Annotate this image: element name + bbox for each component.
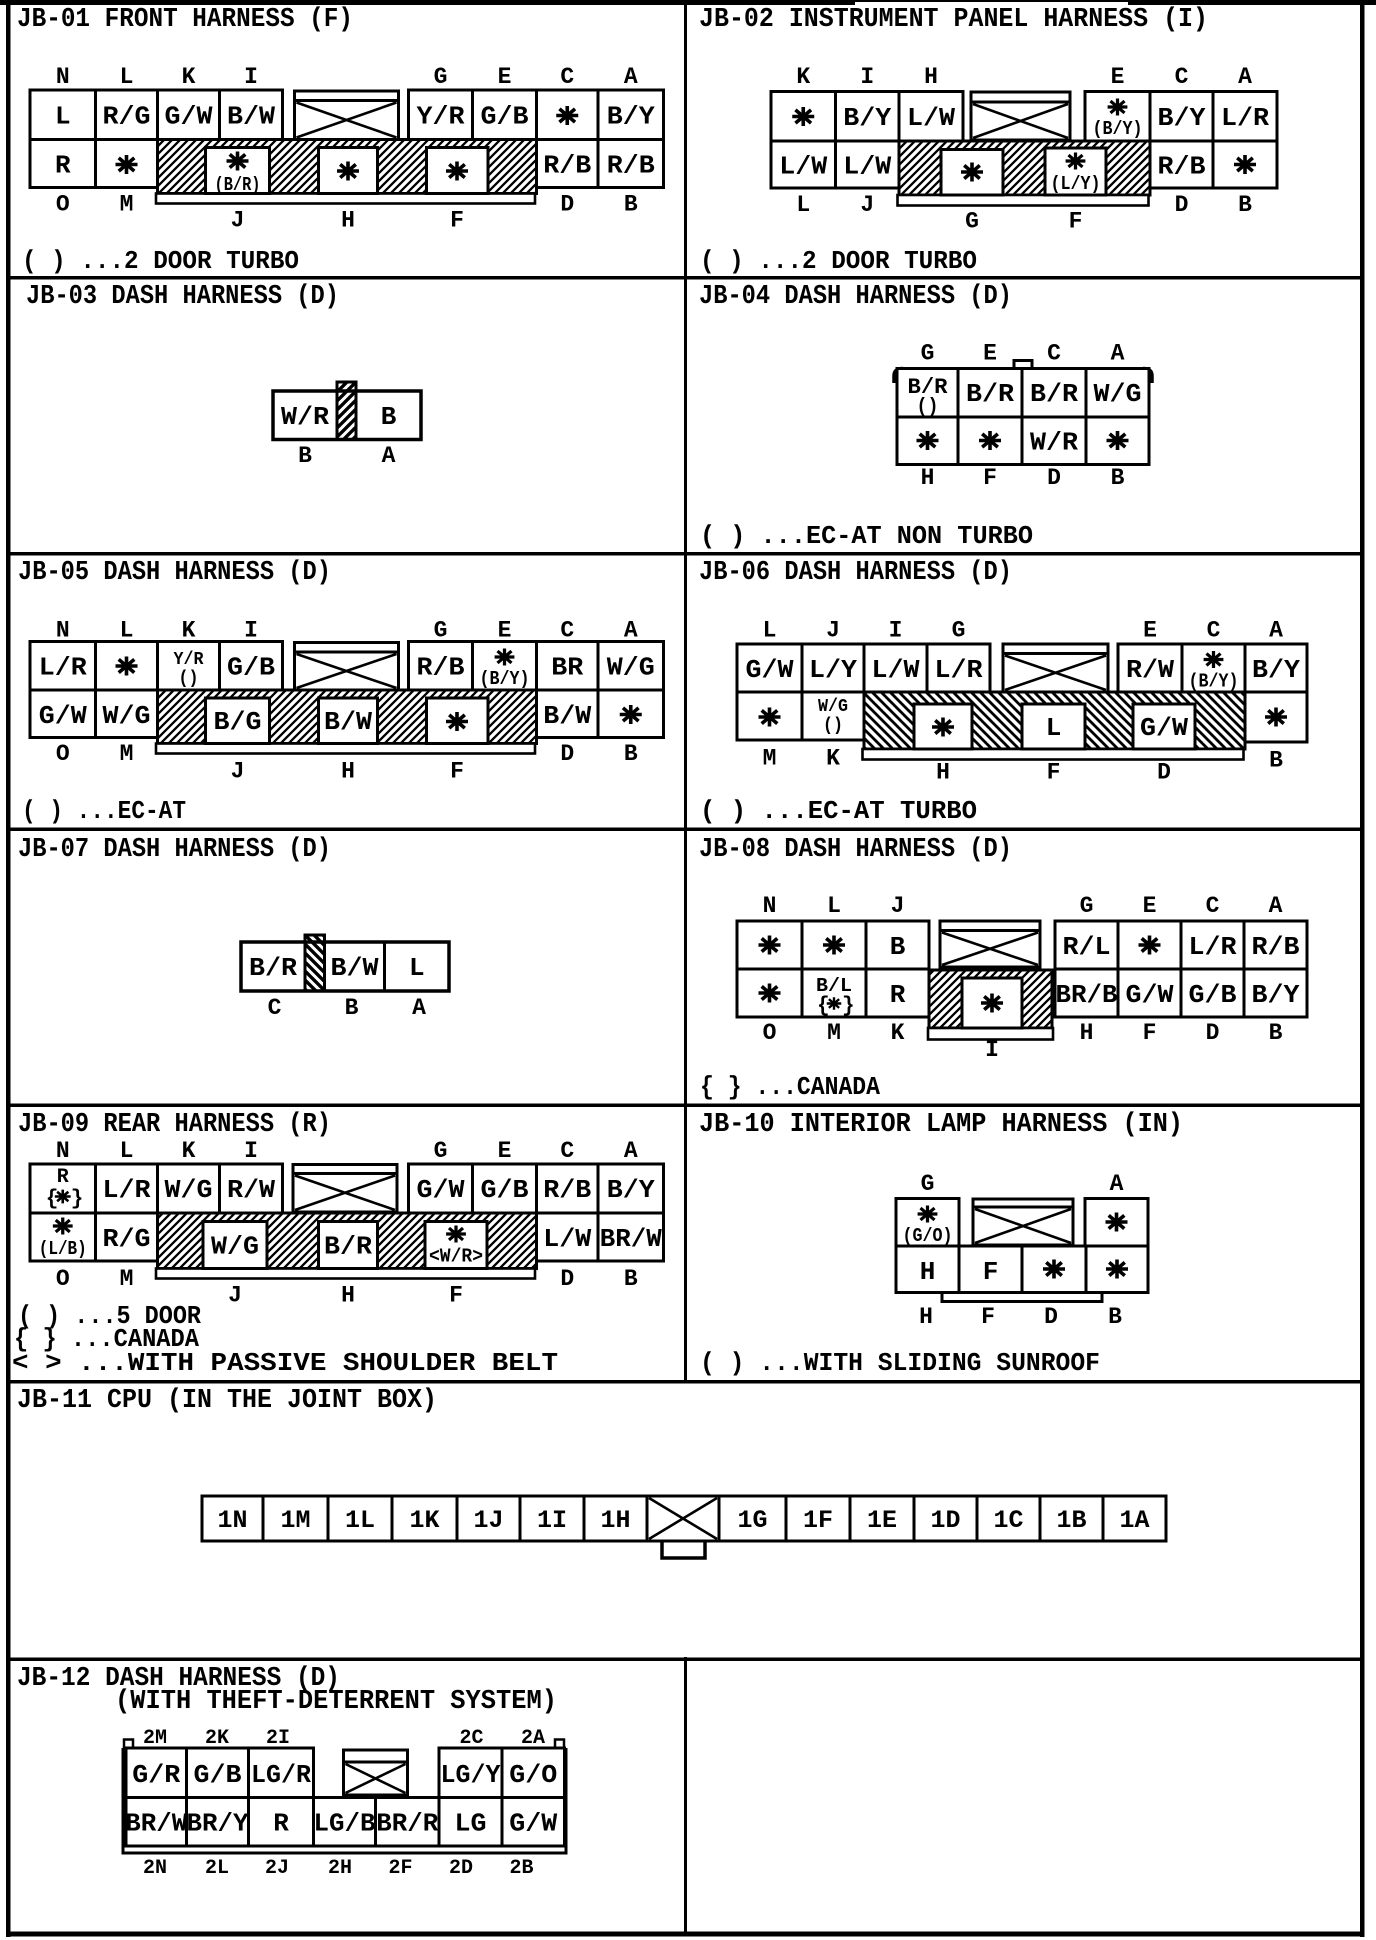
svg-text:L: L bbox=[409, 953, 425, 983]
svg-text:1A: 1A bbox=[1120, 1506, 1150, 1535]
svg-text:L/Y: L/Y bbox=[809, 655, 857, 685]
svg-text:2H: 2H bbox=[328, 1857, 352, 1880]
svg-text:F: F bbox=[450, 208, 464, 234]
svg-text:B/R: B/R bbox=[249, 953, 297, 983]
svg-text:J: J bbox=[231, 208, 245, 234]
svg-text:Y/R: Y/R bbox=[417, 102, 465, 132]
svg-text:B/W: B/W bbox=[331, 953, 379, 983]
svg-text:D: D bbox=[560, 1266, 574, 1292]
svg-text:2D: 2D bbox=[449, 1857, 473, 1880]
svg-text:(B/Y): (B/Y) bbox=[480, 668, 530, 690]
svg-text:LG/B: LG/B bbox=[314, 1809, 376, 1839]
svg-text:H: H bbox=[936, 760, 950, 786]
svg-text:( ) ...WITH SLIDING SUNROOF: ( ) ...WITH SLIDING SUNROOF bbox=[700, 1348, 1100, 1378]
svg-text:B/W: B/W bbox=[227, 102, 275, 132]
svg-text:K: K bbox=[182, 1138, 196, 1164]
svg-text:I: I bbox=[889, 618, 903, 644]
svg-text:H: H bbox=[920, 1257, 936, 1287]
svg-text:R/B: R/B bbox=[607, 151, 655, 181]
svg-text:H: H bbox=[1080, 1020, 1094, 1046]
svg-text:( ) ...EC-AT: ( ) ...EC-AT bbox=[22, 796, 186, 826]
svg-text:N: N bbox=[56, 64, 70, 90]
svg-text:R: R bbox=[890, 980, 906, 1010]
svg-text:R/W: R/W bbox=[227, 1175, 275, 1205]
svg-text:O: O bbox=[763, 1020, 777, 1046]
svg-text:JB-07 DASH HARNESS (D): JB-07 DASH HARNESS (D) bbox=[18, 835, 331, 865]
svg-text:R/B: R/B bbox=[543, 1175, 591, 1205]
svg-text:K: K bbox=[796, 64, 810, 90]
svg-text:K: K bbox=[826, 746, 840, 772]
svg-text:LG/Y: LG/Y bbox=[441, 1760, 501, 1790]
svg-text:E: E bbox=[498, 1138, 512, 1164]
svg-text:R: R bbox=[273, 1809, 289, 1839]
svg-text:1I: 1I bbox=[537, 1506, 567, 1535]
svg-text:C: C bbox=[268, 995, 282, 1021]
svg-text:1G: 1G bbox=[738, 1506, 768, 1535]
svg-text:E: E bbox=[983, 341, 997, 367]
svg-text:H: H bbox=[341, 208, 355, 234]
svg-text:(B/R): (B/R) bbox=[215, 174, 261, 196]
svg-text:(WITH THEFT-DETERRENT SYSTEM): (WITH THEFT-DETERRENT SYSTEM) bbox=[115, 1687, 557, 1717]
svg-text:L/R: L/R bbox=[1221, 103, 1269, 133]
svg-text:W/G: W/G bbox=[165, 1175, 213, 1205]
svg-text:BR/W: BR/W bbox=[125, 1809, 187, 1839]
svg-text:B: B bbox=[624, 1266, 638, 1292]
svg-text:D: D bbox=[560, 192, 574, 218]
svg-text:W/R: W/R bbox=[281, 402, 329, 432]
svg-text:(): () bbox=[179, 669, 199, 689]
svg-text:J: J bbox=[228, 1283, 242, 1309]
svg-text:JB-11 CPU (IN THE JOINT BOX): JB-11 CPU (IN THE JOINT BOX) bbox=[17, 1386, 437, 1416]
svg-text:M: M bbox=[120, 1266, 134, 1292]
svg-text:D: D bbox=[1047, 465, 1061, 491]
svg-text:L/W: L/W bbox=[779, 152, 827, 182]
svg-text:A: A bbox=[382, 443, 396, 469]
svg-text:B/R: B/R bbox=[1030, 379, 1078, 409]
svg-text:G: G bbox=[921, 341, 935, 367]
svg-text:LG/R: LG/R bbox=[251, 1760, 311, 1790]
svg-text:A: A bbox=[412, 995, 426, 1021]
svg-text:D: D bbox=[560, 741, 574, 767]
svg-text:G/B: G/B bbox=[1189, 980, 1237, 1010]
svg-text:B/L: B/L bbox=[816, 975, 852, 997]
svg-text:I: I bbox=[860, 64, 874, 90]
svg-text:1N: 1N bbox=[218, 1506, 248, 1535]
svg-text:L: L bbox=[796, 192, 810, 218]
svg-text:L/W: L/W bbox=[907, 103, 955, 133]
svg-text:F: F bbox=[1143, 1020, 1157, 1046]
svg-text:O: O bbox=[56, 192, 70, 218]
svg-text:H: H bbox=[341, 1283, 355, 1309]
svg-text:R/L: R/L bbox=[1063, 932, 1111, 962]
svg-text:C: C bbox=[1207, 618, 1221, 644]
svg-text:D: D bbox=[1044, 1304, 1058, 1330]
svg-text:1J: 1J bbox=[474, 1506, 504, 1535]
svg-text:<W/R>: <W/R> bbox=[429, 1246, 483, 1268]
svg-text:BR: BR bbox=[551, 653, 583, 683]
svg-text:{ } ...CANADA: { } ...CANADA bbox=[700, 1072, 880, 1102]
svg-text:R/B: R/B bbox=[1158, 152, 1206, 182]
svg-text:H: H bbox=[341, 759, 355, 785]
svg-text:2F: 2F bbox=[389, 1857, 413, 1880]
svg-text:I: I bbox=[985, 1037, 999, 1063]
svg-text:E: E bbox=[1143, 893, 1157, 919]
svg-text:(G/O): (G/O) bbox=[903, 1225, 953, 1247]
svg-text:1F: 1F bbox=[803, 1506, 833, 1535]
svg-text:1C: 1C bbox=[994, 1506, 1024, 1535]
svg-text:D: D bbox=[1157, 760, 1171, 786]
svg-text:N: N bbox=[56, 618, 70, 644]
svg-text:1H: 1H bbox=[601, 1506, 631, 1535]
svg-text:G/B: G/B bbox=[227, 653, 275, 683]
svg-text:G/R: G/R bbox=[132, 1760, 180, 1790]
svg-text:2L: 2L bbox=[205, 1857, 229, 1880]
svg-text:JB-09 REAR HARNESS (R): JB-09 REAR HARNESS (R) bbox=[18, 1110, 331, 1140]
svg-text:BR/Y: BR/Y bbox=[187, 1809, 249, 1839]
svg-text:M: M bbox=[827, 1020, 841, 1046]
svg-text:I: I bbox=[244, 64, 258, 90]
svg-text:W/G: W/G bbox=[211, 1232, 259, 1262]
svg-text:I: I bbox=[244, 618, 258, 644]
svg-text:C: C bbox=[560, 618, 574, 644]
svg-text:BR/R: BR/R bbox=[376, 1809, 438, 1839]
svg-text:B: B bbox=[890, 932, 906, 962]
svg-text:J: J bbox=[231, 759, 245, 785]
svg-text:L/R: L/R bbox=[39, 653, 87, 683]
svg-text:G/B: G/B bbox=[481, 102, 529, 132]
svg-text:B: B bbox=[624, 741, 638, 767]
svg-text:G/O: G/O bbox=[509, 1760, 557, 1790]
svg-text:L: L bbox=[827, 893, 841, 919]
svg-text:G/B: G/B bbox=[194, 1760, 242, 1790]
svg-text:< > ...WITH PASSIVE SHOULDER B: < > ...WITH PASSIVE SHOULDER BELT bbox=[12, 1348, 558, 1378]
svg-text:F: F bbox=[450, 759, 464, 785]
svg-text:W/G: W/G bbox=[103, 701, 151, 731]
svg-text:JB-01 FRONT HARNESS (F): JB-01 FRONT HARNESS (F) bbox=[17, 5, 353, 35]
svg-text:1E: 1E bbox=[867, 1506, 897, 1535]
svg-text:W/R: W/R bbox=[1030, 428, 1078, 458]
svg-text:G/W: G/W bbox=[746, 655, 794, 685]
svg-text:BR/W: BR/W bbox=[600, 1224, 662, 1254]
svg-text:G/W: G/W bbox=[39, 701, 87, 731]
svg-text:B/W: B/W bbox=[543, 701, 591, 731]
svg-text:G/W: G/W bbox=[1140, 713, 1188, 743]
svg-text:W/G: W/G bbox=[607, 653, 655, 683]
svg-text:B: B bbox=[381, 402, 397, 432]
svg-text:H: H bbox=[924, 64, 938, 90]
svg-text:H: H bbox=[921, 465, 935, 491]
svg-text:R/W: R/W bbox=[1126, 655, 1174, 685]
svg-text:JB-03 DASH HARNESS (D): JB-03 DASH HARNESS (D) bbox=[26, 282, 339, 312]
svg-text:J: J bbox=[826, 618, 840, 644]
svg-text:G: G bbox=[1080, 893, 1094, 919]
svg-text:L/W: L/W bbox=[872, 655, 920, 685]
svg-text:B/Y: B/Y bbox=[843, 103, 891, 133]
svg-text:L: L bbox=[120, 1138, 134, 1164]
svg-text:D: D bbox=[1206, 1020, 1220, 1046]
svg-text:G: G bbox=[434, 64, 448, 90]
svg-text:}: } bbox=[842, 995, 855, 1018]
svg-text:B/Y: B/Y bbox=[607, 102, 655, 132]
svg-text:L/W: L/W bbox=[843, 152, 891, 182]
svg-text:O: O bbox=[56, 1266, 70, 1292]
svg-text:1B: 1B bbox=[1057, 1506, 1087, 1535]
svg-text:E: E bbox=[1143, 618, 1157, 644]
svg-text:F: F bbox=[1047, 760, 1061, 786]
svg-text:L/R: L/R bbox=[103, 1175, 151, 1205]
svg-text:JB-10 INTERIOR LAMP HARNESS (I: JB-10 INTERIOR LAMP HARNESS (IN) bbox=[699, 1110, 1183, 1140]
svg-text:JB-06 DASH HARNESS (D): JB-06 DASH HARNESS (D) bbox=[699, 558, 1012, 588]
svg-text:R: R bbox=[55, 151, 71, 181]
svg-text:F: F bbox=[449, 1283, 463, 1309]
svg-text:A: A bbox=[624, 64, 638, 90]
svg-text:L: L bbox=[120, 618, 134, 644]
svg-text:N: N bbox=[763, 893, 777, 919]
svg-text:JB-05 DASH HARNESS (D): JB-05 DASH HARNESS (D) bbox=[18, 558, 331, 588]
svg-text:G/W: G/W bbox=[509, 1809, 557, 1839]
svg-text:E: E bbox=[498, 618, 512, 644]
svg-text:F: F bbox=[983, 1257, 999, 1287]
svg-text:Y/R: Y/R bbox=[174, 650, 204, 670]
svg-text:C: C bbox=[1206, 893, 1220, 919]
svg-text:JB-02 INSTRUMENT PANEL HARNESS: JB-02 INSTRUMENT PANEL HARNESS (I) bbox=[699, 5, 1208, 35]
svg-text:A: A bbox=[1238, 64, 1252, 90]
svg-text:J: J bbox=[891, 893, 905, 919]
svg-text:F: F bbox=[1069, 209, 1083, 235]
svg-text:M: M bbox=[120, 741, 134, 767]
svg-text:B/Y: B/Y bbox=[1252, 980, 1300, 1010]
svg-text:(): () bbox=[823, 716, 843, 736]
svg-text:( ) ...EC-AT TURBO: ( ) ...EC-AT TURBO bbox=[700, 796, 977, 826]
svg-text:JB-08 DASH HARNESS (D): JB-08 DASH HARNESS (D) bbox=[699, 835, 1012, 865]
svg-text:2N: 2N bbox=[143, 1857, 167, 1880]
svg-text:K: K bbox=[182, 618, 196, 644]
svg-text:2J: 2J bbox=[265, 1857, 289, 1880]
svg-text:F: F bbox=[981, 1304, 995, 1330]
svg-text:B/Y: B/Y bbox=[1252, 655, 1300, 685]
svg-text:H: H bbox=[919, 1304, 933, 1330]
svg-text:B: B bbox=[624, 192, 638, 218]
svg-text:(B/Y): (B/Y) bbox=[1189, 671, 1239, 693]
svg-text:BR/B: BR/B bbox=[1056, 980, 1118, 1010]
svg-text:L/W: L/W bbox=[543, 1224, 591, 1254]
svg-text:R/B: R/B bbox=[543, 151, 591, 181]
svg-text:( ) ...2 DOOR TURBO: ( ) ...2 DOOR TURBO bbox=[700, 246, 977, 276]
svg-text:C: C bbox=[560, 1138, 574, 1164]
svg-text:L/R: L/R bbox=[1189, 932, 1237, 962]
svg-text:B: B bbox=[345, 995, 359, 1021]
svg-text:W/G: W/G bbox=[1094, 379, 1142, 409]
svg-text:B/Y: B/Y bbox=[1158, 103, 1206, 133]
svg-text:B/W: B/W bbox=[324, 707, 372, 737]
svg-text:A: A bbox=[1269, 893, 1283, 919]
svg-text:L: L bbox=[55, 102, 71, 132]
svg-text:M: M bbox=[763, 746, 777, 772]
svg-text:R/B: R/B bbox=[417, 653, 465, 683]
svg-text:L: L bbox=[1046, 713, 1062, 743]
svg-text:B: B bbox=[1269, 748, 1283, 774]
svg-text:R/B: R/B bbox=[1252, 932, 1300, 962]
svg-text:G: G bbox=[434, 1138, 448, 1164]
svg-text:(L/B): (L/B) bbox=[39, 1238, 87, 1260]
svg-text:B: B bbox=[298, 443, 312, 469]
svg-text:B/R: B/R bbox=[324, 1232, 372, 1262]
svg-text:F: F bbox=[983, 465, 997, 491]
svg-text:B: B bbox=[1269, 1020, 1283, 1046]
svg-text:2B: 2B bbox=[510, 1857, 534, 1880]
svg-text:G/W: G/W bbox=[417, 1175, 465, 1205]
svg-text:M: M bbox=[120, 192, 134, 218]
svg-text:( ) ...EC-AT NON TURBO: ( ) ...EC-AT NON TURBO bbox=[700, 521, 1033, 551]
svg-text:G: G bbox=[434, 618, 448, 644]
svg-text:G/W: G/W bbox=[165, 102, 213, 132]
svg-text:A: A bbox=[1110, 1171, 1124, 1197]
svg-text:A: A bbox=[1269, 618, 1283, 644]
svg-text:L: L bbox=[763, 618, 777, 644]
svg-text:G: G bbox=[965, 209, 979, 235]
svg-text:C: C bbox=[1175, 64, 1189, 90]
svg-text:A: A bbox=[624, 1138, 638, 1164]
svg-text:B/R: B/R bbox=[966, 379, 1014, 409]
svg-text:E: E bbox=[498, 64, 512, 90]
svg-text:1L: 1L bbox=[345, 1506, 375, 1535]
svg-text:1M: 1M bbox=[281, 1506, 311, 1535]
svg-text:R/G: R/G bbox=[103, 102, 151, 132]
svg-text:B/Y: B/Y bbox=[607, 1175, 655, 1205]
svg-text:D: D bbox=[1175, 192, 1189, 218]
svg-text:B: B bbox=[1111, 465, 1125, 491]
svg-text:{: { bbox=[46, 1188, 59, 1211]
svg-text:(B/Y): (B/Y) bbox=[1093, 118, 1143, 140]
svg-text:JB-04 DASH HARNESS (D): JB-04 DASH HARNESS (D) bbox=[699, 282, 1012, 312]
svg-text:R/G: R/G bbox=[103, 1224, 151, 1254]
svg-text:}: } bbox=[71, 1188, 84, 1211]
svg-text:I: I bbox=[244, 1138, 258, 1164]
svg-text:G: G bbox=[921, 1171, 935, 1197]
svg-text:B/G: B/G bbox=[214, 707, 262, 737]
svg-text:C: C bbox=[560, 64, 574, 90]
svg-text:L/R: L/R bbox=[935, 655, 983, 685]
svg-text:B: B bbox=[1108, 1304, 1122, 1330]
svg-text:K: K bbox=[891, 1020, 905, 1046]
svg-text:L: L bbox=[120, 64, 134, 90]
svg-text:C: C bbox=[1047, 341, 1061, 367]
svg-text:R: R bbox=[57, 1166, 69, 1189]
svg-text:E: E bbox=[1111, 64, 1125, 90]
svg-text:A: A bbox=[624, 618, 638, 644]
svg-text:N: N bbox=[56, 1138, 70, 1164]
svg-text:G: G bbox=[952, 618, 966, 644]
svg-text:J: J bbox=[860, 192, 874, 218]
svg-text:K: K bbox=[182, 64, 196, 90]
svg-text:O: O bbox=[56, 741, 70, 767]
svg-text:(L/Y): (L/Y) bbox=[1051, 173, 1101, 195]
svg-text:1D: 1D bbox=[931, 1506, 961, 1535]
svg-text:G/B: G/B bbox=[481, 1175, 529, 1205]
svg-text:W/G: W/G bbox=[818, 697, 848, 717]
svg-text:1K: 1K bbox=[410, 1506, 440, 1535]
svg-text:{: { bbox=[817, 995, 830, 1018]
svg-text:A: A bbox=[1111, 341, 1125, 367]
svg-text:G/W: G/W bbox=[1126, 980, 1174, 1010]
svg-text:( ) ...2 DOOR TURBO: ( ) ...2 DOOR TURBO bbox=[22, 246, 299, 276]
svg-text:B: B bbox=[1238, 192, 1252, 218]
svg-text:LG: LG bbox=[455, 1809, 487, 1839]
